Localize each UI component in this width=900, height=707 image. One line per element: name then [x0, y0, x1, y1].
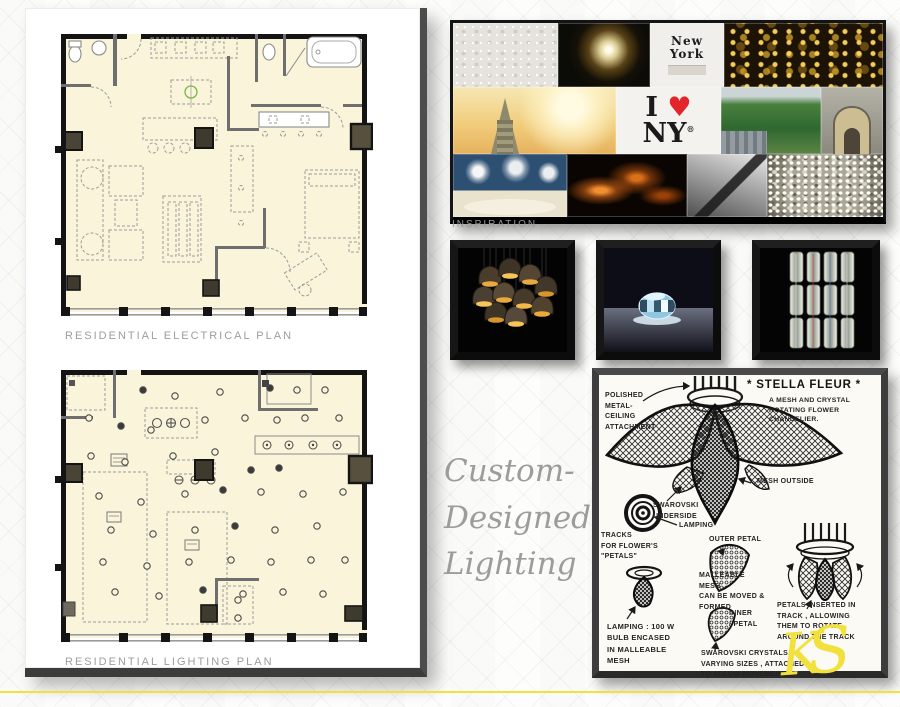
registered-mark: ® [686, 124, 694, 134]
crystal-column-image [760, 248, 872, 352]
inspiration-tile-new-york-typography: New York [650, 23, 724, 87]
headline-line1: Custom- [444, 448, 590, 495]
framed-photo-pendant-lamps [450, 240, 575, 360]
type-tile-line1: New [671, 35, 703, 48]
framed-photo-blue-crystal [596, 240, 721, 360]
annotation-polished-metal: POLISHED METAL- CEILING ATTACHMENT [605, 391, 656, 433]
event-table-shape [464, 199, 555, 215]
headline-custom-designed-lighting: Custom- Designed Lighting [444, 448, 590, 588]
headline-line2: Designed [444, 495, 590, 542]
sketch-subtitle: A MESH AND CRYSTAL ROTATING FLOWER CHAND… [769, 396, 879, 425]
inspiration-tile-gold-bokeh [724, 23, 883, 87]
type-tile-pedestal [668, 65, 706, 75]
annotation-lamping-bulb: LAMPING : 100 W BULB ENCASED IN MALLEABL… [607, 621, 674, 666]
residential-electrical-plan-drawing [55, 28, 373, 324]
entrance-door-shape [844, 128, 860, 154]
annotation-mesh-outside: MESH OUTSIDE [757, 477, 814, 488]
annotation-malleable-mesh: MALLEABLE MESH , CAN BE MOVED & FORMED [699, 571, 789, 613]
chrysler-spire-tiers [497, 120, 513, 154]
annotation-outer-petal: OUTER PETAL [709, 535, 761, 546]
annotation-tracks: TRACKS FOR FLOWER'S "PETALS" [601, 531, 658, 563]
annotation-swarovski-underside: SWAROVSKI UNDERSIDE [653, 501, 698, 522]
residential-lighting-plan-drawing [55, 364, 373, 652]
annotation-inner-petal: INNER / PETAL [729, 609, 757, 630]
sketch-title: * STELLA FLEUR * [747, 379, 881, 391]
central-park-skyline [721, 131, 767, 154]
framed-photo-crystal-column [752, 240, 880, 360]
lighting-plan-title: RESIDENTIAL LIGHTING PLAN [65, 656, 274, 668]
yellow-accent-line [0, 691, 900, 693]
inspiration-board: New York I ♥ NY® [450, 20, 886, 224]
inspiration-tile-fire-light-painting [567, 154, 687, 217]
monogram-s: S [805, 613, 854, 690]
type-tile-line2: York [670, 48, 704, 61]
inspiration-tile-bw-city-photo [687, 154, 767, 217]
ny-logo-ny: NY [643, 118, 687, 149]
inspiration-tile-sparkler [558, 23, 650, 87]
inspiration-tile-chrysler-sunset [453, 87, 616, 154]
inspiration-label: INSPIRATION [452, 219, 537, 230]
inspiration-tile-hotel-entrance [821, 87, 883, 154]
pendant-lamps-image [458, 248, 567, 352]
ks-monogram: KS [778, 618, 853, 687]
inspiration-tile-i-love-ny: I ♥ NY® [616, 87, 721, 154]
headline-line3: Lighting [444, 541, 590, 588]
portfolio-page: RESIDENTIAL ELECTRICAL PLAN [0, 0, 900, 707]
entrance-arch-shape [833, 106, 871, 154]
inspiration-tile-white-glitter [453, 23, 558, 87]
inspiration-tile-central-park [721, 87, 821, 154]
inspiration-tile-event-tables [453, 154, 567, 217]
floor-plans-board: RESIDENTIAL ELECTRICAL PLAN [25, 8, 427, 677]
electrical-plan-title: RESIDENTIAL ELECTRICAL PLAN [65, 330, 293, 342]
annotation-lamping: LAMPING [679, 521, 713, 532]
blue-crystal-image [604, 248, 713, 352]
inspiration-tile-diamonds [767, 154, 883, 217]
